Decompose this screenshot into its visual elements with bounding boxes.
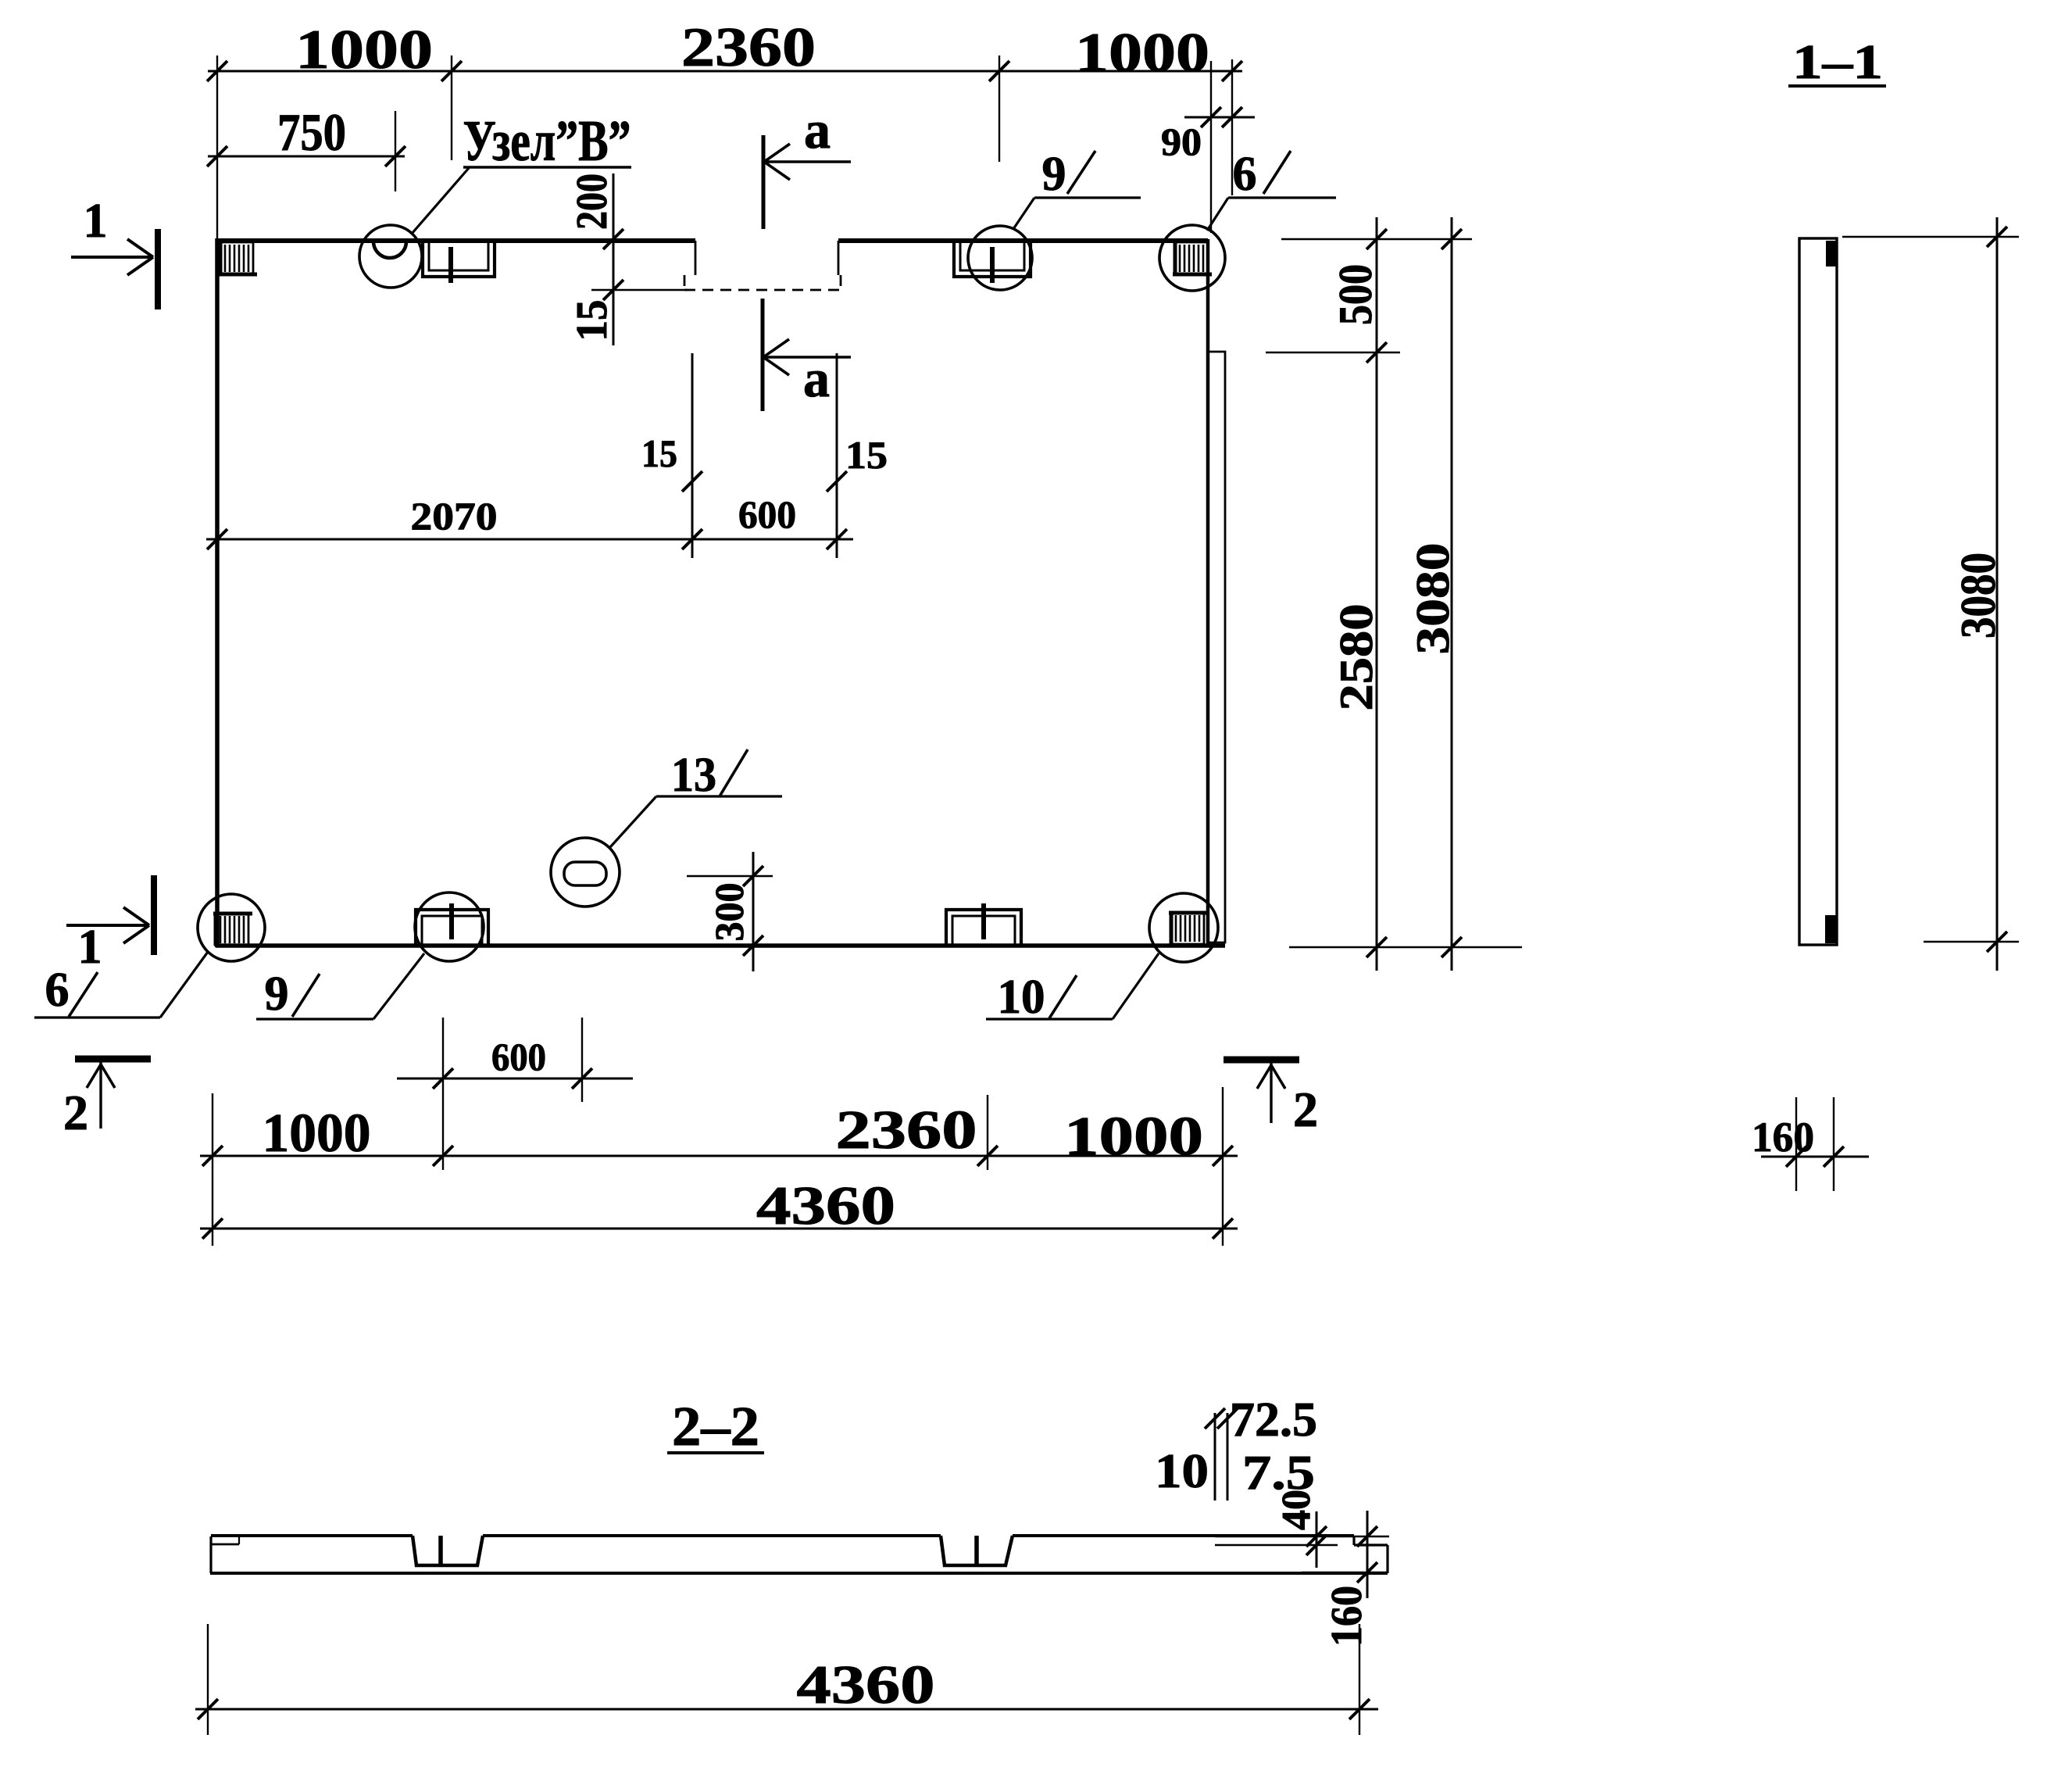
svg-text:9: 9 bbox=[1042, 148, 1066, 201]
svg-text:4360: 4360 bbox=[797, 1655, 935, 1715]
svg-text:1: 1 bbox=[84, 195, 108, 248]
svg-text:13: 13 bbox=[671, 749, 716, 802]
svg-text:10: 10 bbox=[1155, 1445, 1209, 1498]
svg-text:72.5: 72.5 bbox=[1230, 1393, 1317, 1447]
svg-text:2360: 2360 bbox=[836, 1100, 977, 1161]
svg-text:4360: 4360 bbox=[756, 1176, 895, 1236]
svg-text:600: 600 bbox=[738, 492, 796, 536]
svg-text:2: 2 bbox=[63, 1085, 88, 1140]
svg-text:600: 600 bbox=[491, 1035, 546, 1078]
svg-text:a: a bbox=[804, 100, 831, 159]
svg-text:160: 160 bbox=[1752, 1114, 1814, 1161]
svg-text:2360: 2360 bbox=[681, 17, 816, 78]
svg-text:2: 2 bbox=[1293, 1082, 1318, 1137]
svg-text:200: 200 bbox=[568, 173, 616, 230]
svg-text:1000: 1000 bbox=[263, 1103, 371, 1164]
svg-text:160: 160 bbox=[1323, 1586, 1371, 1647]
svg-text:9: 9 bbox=[265, 968, 289, 1021]
svg-text:3080: 3080 bbox=[1950, 553, 2006, 638]
svg-text:3080: 3080 bbox=[1407, 543, 1459, 655]
svg-text:1000: 1000 bbox=[295, 20, 433, 80]
svg-text:Узел”В”: Узел”В” bbox=[463, 109, 631, 173]
svg-text:6: 6 bbox=[45, 964, 70, 1017]
svg-text:1000: 1000 bbox=[1064, 1107, 1203, 1167]
svg-text:500: 500 bbox=[1330, 264, 1381, 325]
svg-text:2070: 2070 bbox=[411, 494, 498, 538]
svg-text:40: 40 bbox=[1274, 1490, 1319, 1530]
svg-text:1000: 1000 bbox=[1075, 23, 1209, 84]
svg-text:a: a bbox=[803, 349, 830, 408]
svg-text:15: 15 bbox=[641, 431, 677, 475]
svg-text:1: 1 bbox=[78, 921, 102, 974]
svg-text:2–2: 2–2 bbox=[672, 1395, 759, 1458]
svg-text:90: 90 bbox=[1161, 120, 1202, 163]
svg-text:6: 6 bbox=[1233, 148, 1257, 201]
svg-text:300: 300 bbox=[708, 883, 752, 942]
svg-text:10: 10 bbox=[998, 971, 1045, 1024]
svg-text:750: 750 bbox=[277, 102, 346, 162]
svg-text:15: 15 bbox=[568, 300, 616, 342]
svg-text:1–1: 1–1 bbox=[1792, 36, 1883, 89]
svg-text:15: 15 bbox=[845, 433, 888, 477]
svg-text:2580: 2580 bbox=[1331, 604, 1382, 711]
